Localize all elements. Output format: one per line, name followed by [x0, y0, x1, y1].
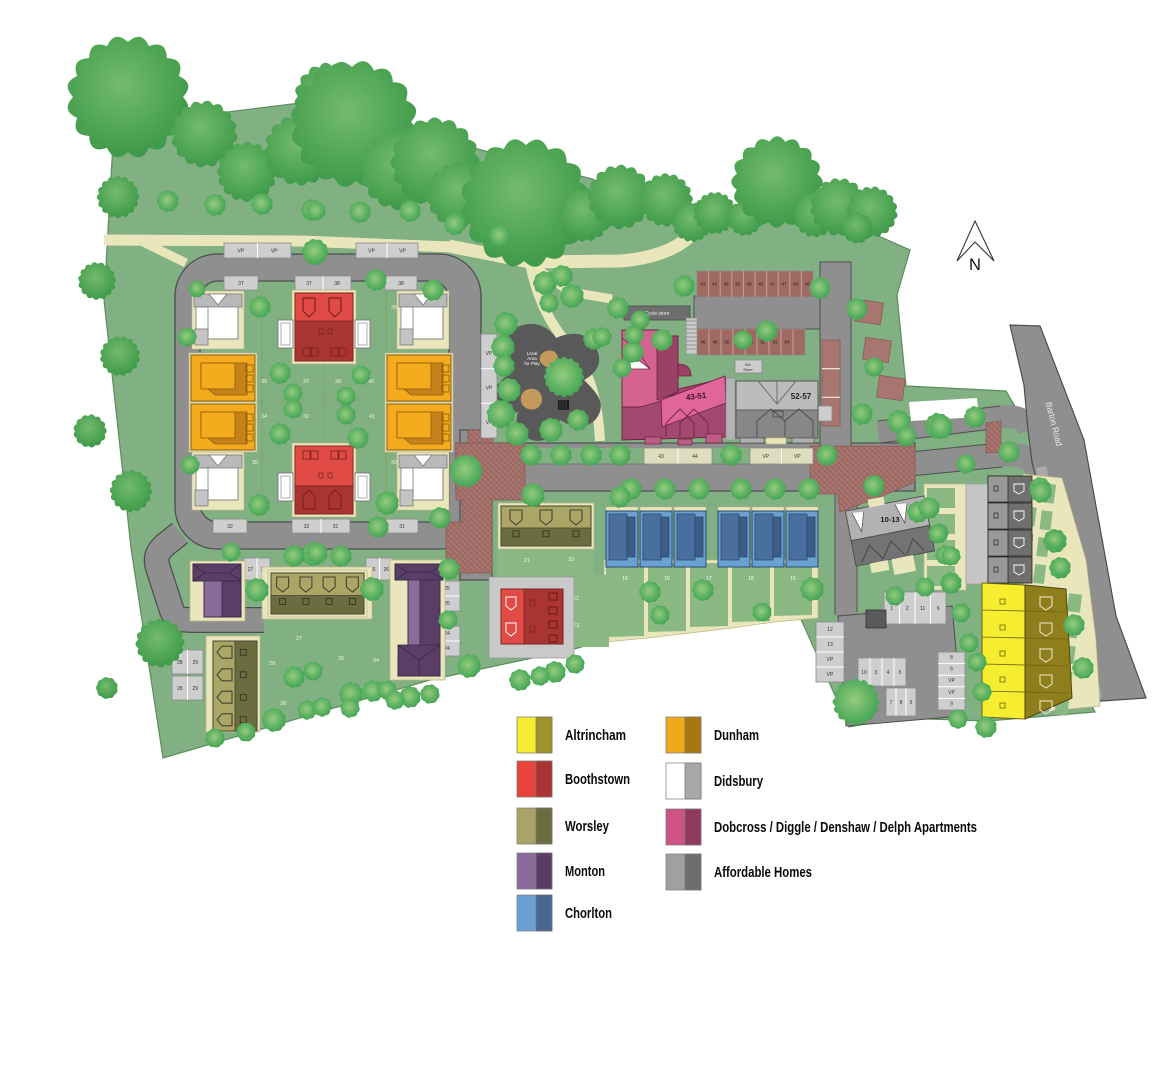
svg-text:42: 42 [391, 460, 397, 466]
svg-text:32: 32 [303, 414, 309, 420]
svg-text:29: 29 [269, 661, 275, 667]
svg-text:31: 31 [399, 524, 405, 530]
svg-text:26: 26 [383, 567, 389, 573]
svg-text:18: 18 [748, 576, 754, 582]
svg-text:35: 35 [252, 460, 258, 466]
svg-text:12: 12 [827, 627, 833, 633]
svg-text:47: 47 [770, 282, 776, 287]
svg-text:32: 32 [304, 524, 310, 530]
svg-text:39: 39 [335, 379, 341, 385]
svg-text:26: 26 [338, 656, 344, 662]
svg-text:Worsley: Worsley [565, 819, 609, 835]
svg-text:VP: VP [368, 248, 375, 254]
svg-text:VP: VP [948, 678, 955, 684]
svg-text:2: 2 [906, 606, 909, 612]
svg-text:VP: VP [271, 248, 278, 254]
svg-text:Monton: Monton [565, 864, 605, 880]
svg-text:4: 4 [887, 670, 890, 676]
svg-text:27: 27 [248, 567, 254, 573]
svg-text:10-13: 10-13 [880, 515, 899, 524]
svg-text:N: N [969, 256, 981, 274]
svg-text:5: 5 [899, 670, 902, 676]
svg-text:32: 32 [227, 524, 233, 530]
svg-text:7: 7 [890, 700, 893, 706]
svg-text:48: 48 [793, 282, 799, 287]
svg-text:Affordable Homes: Affordable Homes [714, 865, 812, 881]
svg-text:Dunham: Dunham [714, 728, 759, 744]
svg-text:46: 46 [758, 282, 764, 287]
svg-text:50: 50 [724, 340, 730, 345]
svg-text:34: 34 [261, 414, 267, 420]
svg-text:93: 93 [772, 340, 778, 345]
svg-text:41: 41 [369, 414, 375, 420]
svg-text:21: 21 [524, 558, 530, 564]
svg-text:52-57: 52-57 [791, 392, 812, 401]
svg-text:8: 8 [900, 700, 903, 706]
svg-text:34: 34 [373, 658, 379, 664]
svg-text:Chorlton: Chorlton [565, 906, 612, 922]
svg-text:47: 47 [781, 282, 787, 287]
svg-text:48: 48 [712, 340, 718, 345]
svg-text:38: 38 [334, 281, 340, 287]
svg-text:for Play: for Play [524, 361, 540, 366]
svg-text:35: 35 [261, 379, 267, 385]
svg-text:37: 37 [306, 281, 312, 287]
svg-text:6: 6 [950, 667, 953, 673]
svg-text:39: 39 [391, 305, 397, 311]
svg-text:10: 10 [861, 670, 867, 676]
svg-text:45: 45 [735, 282, 741, 287]
svg-text:16: 16 [664, 576, 670, 582]
svg-text:Store: Store [743, 367, 753, 372]
svg-text:15: 15 [790, 576, 796, 582]
svg-text:13: 13 [827, 642, 833, 648]
svg-text:49: 49 [700, 340, 706, 345]
svg-text:27: 27 [296, 636, 302, 642]
svg-text:48: 48 [805, 282, 811, 287]
svg-text:Didsbury: Didsbury [714, 774, 763, 790]
svg-text:44: 44 [692, 454, 698, 460]
svg-text:38: 38 [398, 281, 404, 287]
svg-text:VP: VP [486, 351, 493, 357]
svg-text:9: 9 [910, 700, 913, 706]
svg-text:3: 3 [875, 670, 878, 676]
svg-text:VP: VP [237, 248, 244, 254]
svg-text:45: 45 [723, 282, 729, 287]
svg-text:VP: VP [486, 385, 493, 391]
svg-text:37: 37 [303, 379, 309, 385]
svg-text:43: 43 [658, 454, 664, 460]
svg-text:28: 28 [280, 701, 286, 707]
svg-text:64: 64 [784, 340, 790, 345]
svg-text:3T: 3T [238, 281, 244, 287]
svg-text:VP: VP [827, 657, 834, 663]
svg-text:11: 11 [920, 606, 925, 612]
svg-text:1: 1 [890, 606, 893, 612]
svg-text:43: 43 [700, 282, 706, 287]
svg-text:Dobcross / Diggle / Denshaw /: Dobcross / Diggle / Denshaw / Delph Apar… [714, 820, 977, 836]
svg-text:31: 31 [333, 524, 339, 530]
svg-text:Altrincham: Altrincham [565, 728, 626, 744]
svg-text:46: 46 [747, 282, 753, 287]
svg-text:VP: VP [827, 672, 834, 678]
svg-text:29: 29 [192, 686, 198, 692]
svg-text:28: 28 [177, 660, 183, 666]
svg-text:16: 16 [622, 576, 628, 582]
svg-text:44: 44 [712, 282, 718, 287]
svg-text:8: 8 [950, 655, 953, 661]
svg-text:VP: VP [762, 454, 769, 460]
svg-text:Boothstown: Boothstown [565, 772, 630, 788]
svg-text:VP: VP [948, 690, 955, 696]
svg-text:VP: VP [399, 248, 406, 254]
svg-text:28: 28 [177, 686, 183, 692]
svg-text:29: 29 [192, 660, 198, 666]
svg-text:6: 6 [937, 606, 940, 612]
svg-text:9: 9 [950, 701, 953, 707]
svg-text:VP: VP [794, 454, 801, 460]
svg-text:33: 33 [568, 557, 574, 563]
